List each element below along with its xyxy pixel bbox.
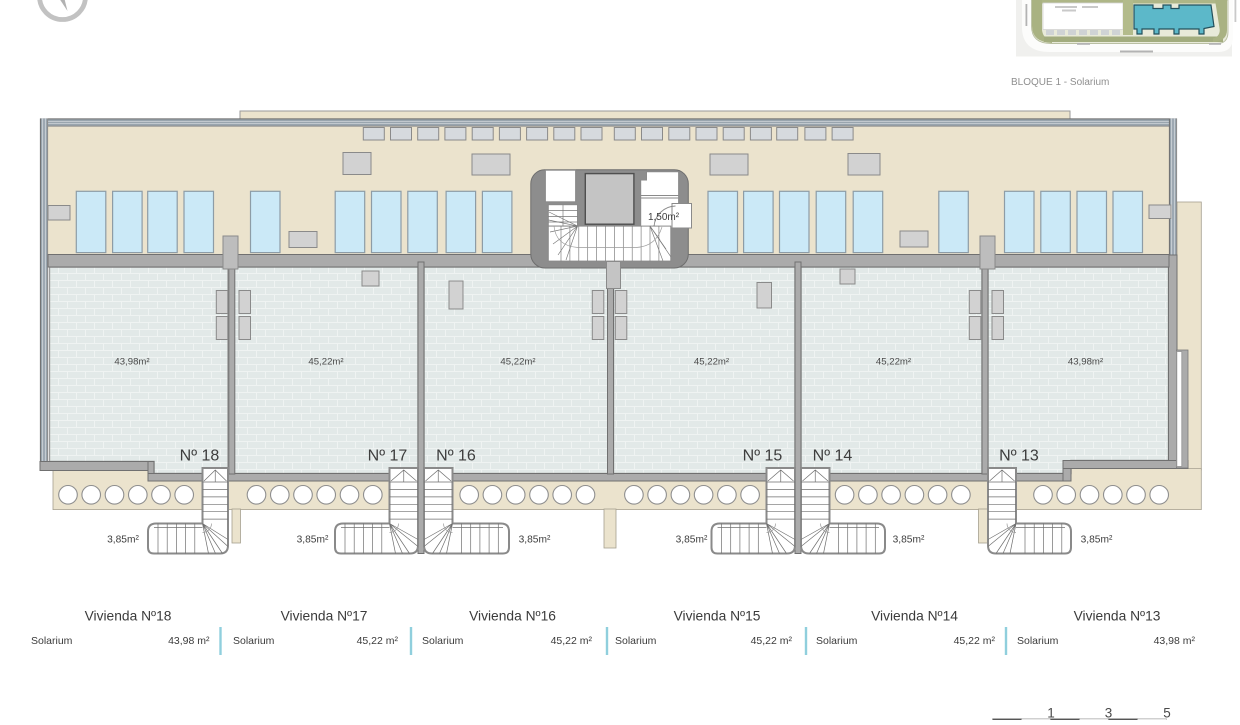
svg-text:5: 5	[1163, 705, 1171, 720]
svg-text:45,22 m²: 45,22 m²	[551, 635, 593, 647]
svg-text:45,22m²: 45,22m²	[694, 357, 730, 368]
svg-text:Nº 15: Nº 15	[743, 448, 783, 465]
svg-text:3,85m²: 3,85m²	[297, 535, 329, 546]
svg-text:1,50m²: 1,50m²	[648, 212, 680, 223]
svg-text:45,22 m²: 45,22 m²	[357, 635, 399, 647]
svg-text:45,22m²: 45,22m²	[876, 357, 912, 368]
svg-text:43,98 m²: 43,98 m²	[168, 635, 210, 647]
svg-text:Solarium: Solarium	[233, 635, 275, 647]
svg-text:45,22m²: 45,22m²	[500, 357, 536, 368]
svg-text:BLOQUE 1 - Solarium: BLOQUE 1 - Solarium	[1011, 77, 1109, 88]
svg-text:Nº 13: Nº 13	[999, 448, 1039, 465]
svg-text:Solarium: Solarium	[816, 635, 858, 647]
svg-text:Nº 14: Nº 14	[813, 448, 853, 465]
svg-text:Solarium: Solarium	[31, 635, 73, 647]
svg-text:45,22 m²: 45,22 m²	[954, 635, 996, 647]
svg-text:3,85m²: 3,85m²	[1081, 535, 1113, 546]
svg-text:43,98 m²: 43,98 m²	[1154, 635, 1196, 647]
svg-text:Vivienda Nº18: Vivienda Nº18	[85, 609, 172, 624]
svg-text:1: 1	[1047, 705, 1055, 720]
svg-text:3,85m²: 3,85m²	[893, 535, 925, 546]
svg-text:45,22 m²: 45,22 m²	[751, 635, 793, 647]
svg-text:Vivienda Nº17: Vivienda Nº17	[281, 609, 368, 624]
svg-text:Solarium: Solarium	[615, 635, 657, 647]
svg-text:Nº 16: Nº 16	[436, 448, 476, 465]
svg-text:Vivienda Nº13: Vivienda Nº13	[1074, 609, 1161, 624]
svg-text:43,98m²: 43,98m²	[114, 357, 150, 368]
svg-text:3: 3	[1105, 705, 1113, 720]
svg-text:3,85m²: 3,85m²	[519, 535, 551, 546]
svg-text:Nº 17: Nº 17	[368, 448, 408, 465]
svg-text:3,85m²: 3,85m²	[676, 535, 708, 546]
svg-text:Vivienda Nº16: Vivienda Nº16	[469, 609, 556, 624]
svg-text:Solarium: Solarium	[422, 635, 464, 647]
svg-text:Solarium: Solarium	[1017, 635, 1059, 647]
svg-text:Vivienda Nº15: Vivienda Nº15	[674, 609, 761, 624]
svg-text:3,85m²: 3,85m²	[107, 535, 139, 546]
svg-text:45,22m²: 45,22m²	[308, 357, 344, 368]
svg-text:Vivienda Nº14: Vivienda Nº14	[871, 609, 958, 624]
svg-text:Nº 18: Nº 18	[180, 448, 220, 465]
svg-text:43,98m²: 43,98m²	[1068, 357, 1104, 368]
